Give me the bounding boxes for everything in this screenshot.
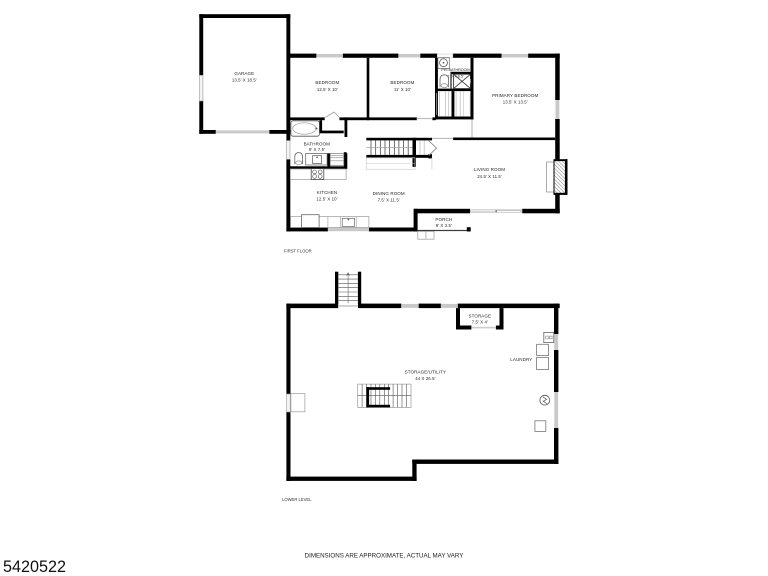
svg-text:44 X 26.5': 44 X 26.5' bbox=[415, 376, 435, 381]
svg-text:STORAGE/UTILITY: STORAGE/UTILITY bbox=[405, 370, 446, 375]
svg-text:FIRST FLOOR: FIRST FLOOR bbox=[284, 249, 312, 254]
svg-text:PORCH: PORCH bbox=[435, 217, 452, 222]
svg-text:GARAGE: GARAGE bbox=[234, 71, 254, 76]
svg-text:7.5' X 11.5': 7.5' X 11.5' bbox=[378, 198, 400, 203]
svg-text:12.5' X 10': 12.5' X 10' bbox=[316, 197, 337, 202]
svg-text:13.5' X 18.5': 13.5' X 18.5' bbox=[232, 77, 257, 82]
svg-text:KITCHEN: KITCHEN bbox=[317, 190, 337, 195]
svg-text:11' X 10': 11' X 10' bbox=[394, 87, 411, 92]
svg-text:LOWER LEVEL: LOWER LEVEL bbox=[282, 497, 312, 502]
svg-text:7.5' X 6.5': 7.5' X 6.5' bbox=[447, 74, 463, 78]
svg-text:LIVING ROOM: LIVING ROOM bbox=[474, 167, 505, 172]
svg-text:PRIMARY BEDROOM: PRIMARY BEDROOM bbox=[492, 93, 538, 98]
svg-text:BEDROOM: BEDROOM bbox=[315, 80, 339, 85]
svg-text:LAUNDRY: LAUNDRY bbox=[510, 357, 532, 362]
svg-text:BEDROOM: BEDROOM bbox=[390, 80, 414, 85]
svg-text:9' X 7.5': 9' X 7.5' bbox=[309, 147, 325, 152]
svg-text:13.5' X 13.5': 13.5' X 13.5' bbox=[503, 100, 528, 105]
svg-text:DINING ROOM: DINING ROOM bbox=[373, 191, 405, 196]
svg-text:7.5' X 4': 7.5' X 4' bbox=[472, 320, 488, 325]
svg-text:BATHROOM: BATHROOM bbox=[304, 141, 331, 146]
svg-text:9' X 3.5': 9' X 3.5' bbox=[436, 223, 452, 228]
svg-text:PRI BATHROOM: PRI BATHROOM bbox=[441, 68, 469, 72]
svg-text:DIMENSIONS ARE APPROXIMATE, AC: DIMENSIONS ARE APPROXIMATE, ACTUAL MAY V… bbox=[305, 553, 464, 560]
svg-text:24.5' X 11.5': 24.5' X 11.5' bbox=[477, 174, 502, 179]
svg-text:5420522: 5420522 bbox=[3, 558, 66, 576]
svg-text:12.5' X 10': 12.5' X 10' bbox=[317, 87, 338, 92]
svg-text:STORAGE: STORAGE bbox=[468, 314, 491, 319]
